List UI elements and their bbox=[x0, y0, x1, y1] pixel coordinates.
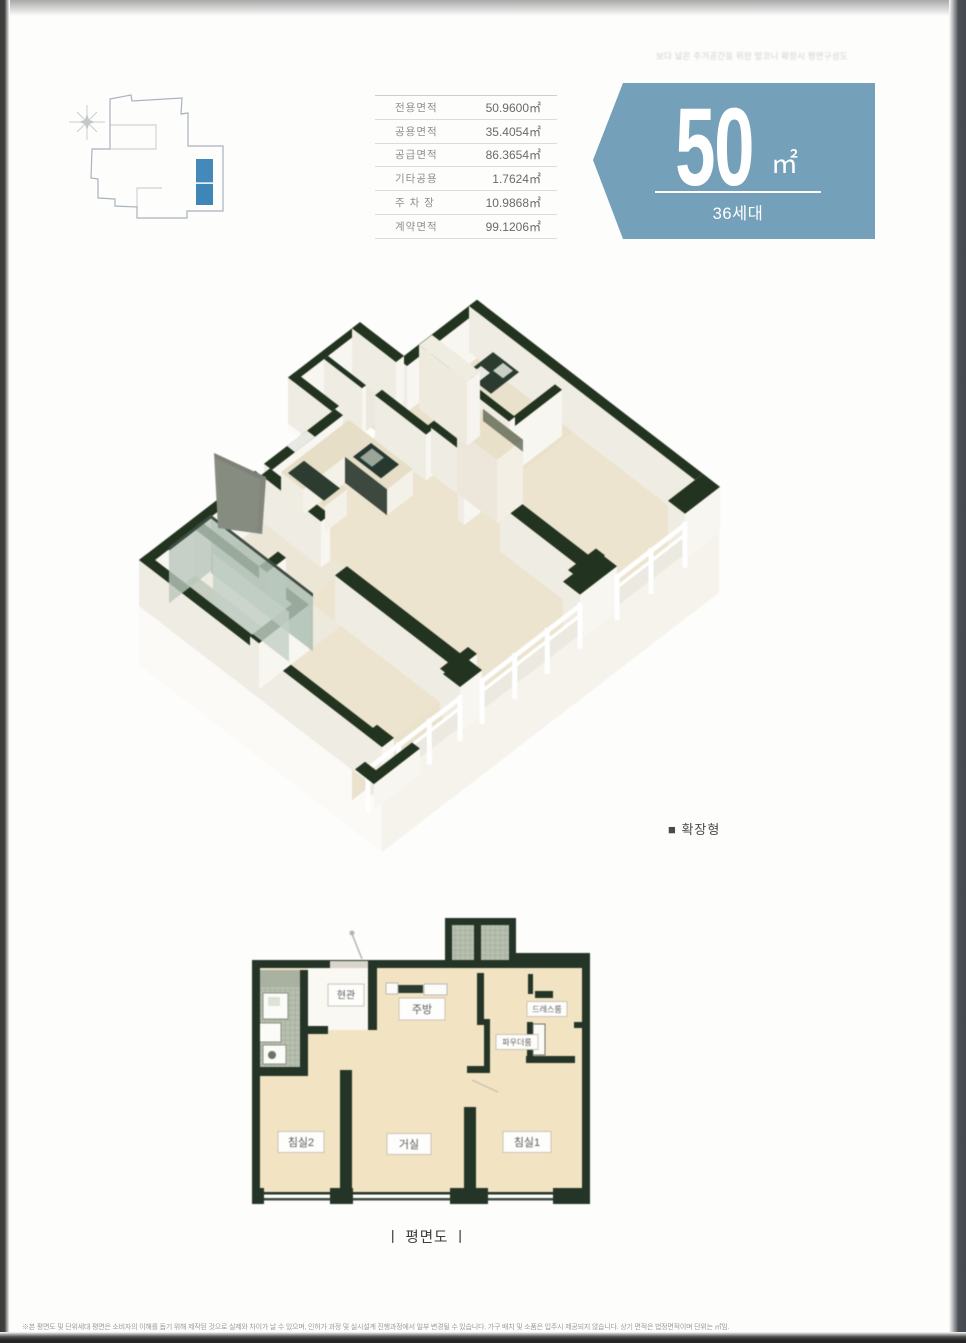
svg-text:현관: 현관 bbox=[337, 990, 355, 1002]
svg-text:파우더룸: 파우더룸 bbox=[502, 1038, 531, 1047]
svg-text:침실2: 침실2 bbox=[288, 1136, 314, 1149]
svg-text:침실1: 침실1 bbox=[514, 1136, 540, 1149]
svg-text:거실: 거실 bbox=[399, 1138, 419, 1151]
svg-text:주방: 주방 bbox=[412, 1003, 432, 1016]
svg-text:드레스룸: 드레스룸 bbox=[532, 1005, 561, 1014]
